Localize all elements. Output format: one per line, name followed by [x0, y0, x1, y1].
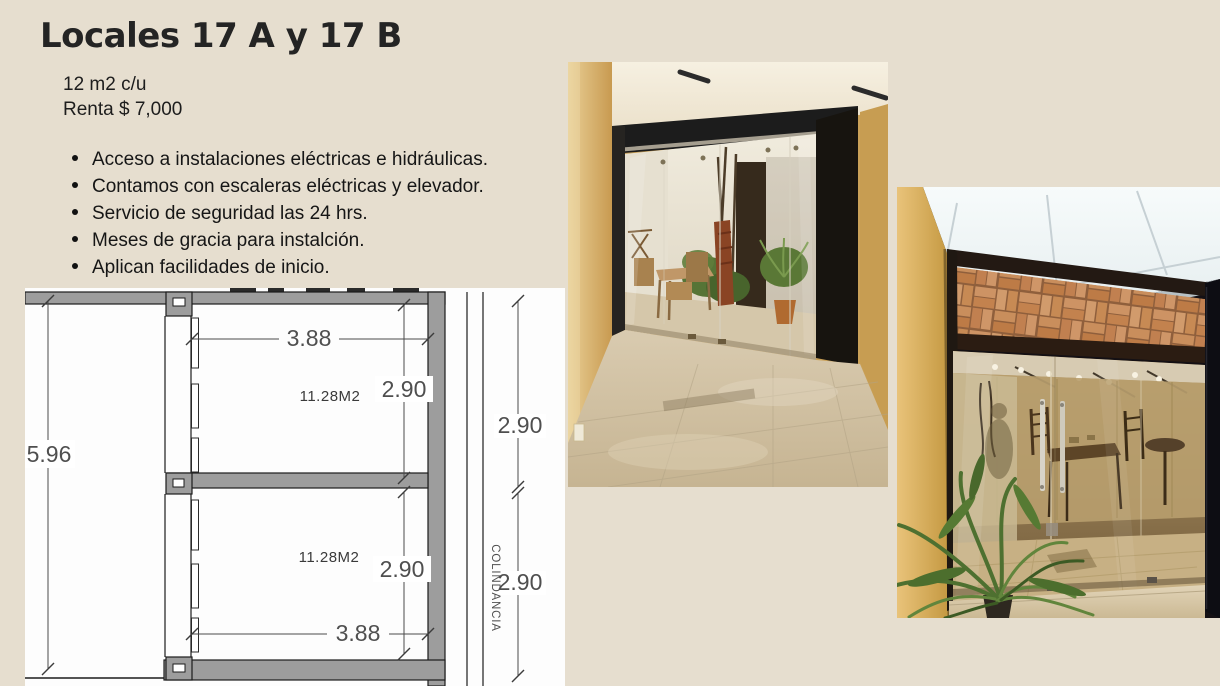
bullet-icon [72, 263, 78, 269]
rent-text: Renta $ 7,000 [63, 99, 182, 121]
bullet-icon [72, 155, 78, 161]
slide: Locales 17 A y 17 B 12 m2 c/u Renta $ 7,… [0, 0, 1220, 686]
bullet-icon [72, 182, 78, 188]
dim-label: 5.96 [27, 441, 72, 467]
dim-label: 3.88 [336, 620, 381, 646]
list-item: Meses de gracia para instalción. [72, 230, 488, 257]
list-item: Aplican facilidades de inicio. [72, 257, 488, 284]
dim-label: 2.90 [380, 556, 425, 582]
storefront-left-wall [897, 187, 951, 618]
door-frame-right [816, 108, 858, 366]
hallway-photo [568, 62, 888, 487]
wall-outlet [574, 424, 584, 441]
area-label: 11.28M2 [299, 549, 360, 566]
dim-label: 3.88 [287, 325, 332, 351]
area-label: 11.28M2 [300, 388, 361, 405]
feature-text: Acceso a instalaciones eléctricas e hidr… [92, 149, 488, 171]
feature-text: Aplican facilidades de inicio. [92, 257, 330, 279]
bullet-icon [72, 209, 78, 215]
feature-text: Meses de gracia para instalción. [92, 230, 364, 252]
feature-list: Acceso a instalaciones eléctricas e hidr… [72, 149, 488, 284]
dim-label: 2.90 [498, 412, 543, 438]
unit-size-text: 12 m2 c/u [63, 74, 146, 96]
list-item: Acceso a instalaciones eléctricas e hidr… [72, 149, 488, 176]
floor-plan: 5.96 3.88 2.90 11.28M2 [25, 288, 565, 686]
dim-label: 2.90 [498, 569, 543, 595]
door-frame-left [612, 126, 625, 336]
feature-text: Contamos con escaleras eléctricas y elev… [92, 176, 484, 198]
bullet-icon [72, 236, 78, 242]
floor-highlight [608, 434, 768, 470]
list-item: Servicio de seguridad las 24 hrs. [72, 203, 488, 230]
storefront-photo [897, 187, 1220, 618]
feature-text: Servicio de seguridad las 24 hrs. [92, 203, 368, 225]
boundary-label: COLINDANCIA [489, 544, 501, 631]
list-item: Contamos con escaleras eléctricas y elev… [72, 176, 488, 203]
storefront-interior [953, 351, 1205, 603]
page-title: Locales 17 A y 17 B [40, 16, 402, 56]
dim-label: 2.90 [382, 376, 427, 402]
glass-interior [625, 134, 816, 367]
